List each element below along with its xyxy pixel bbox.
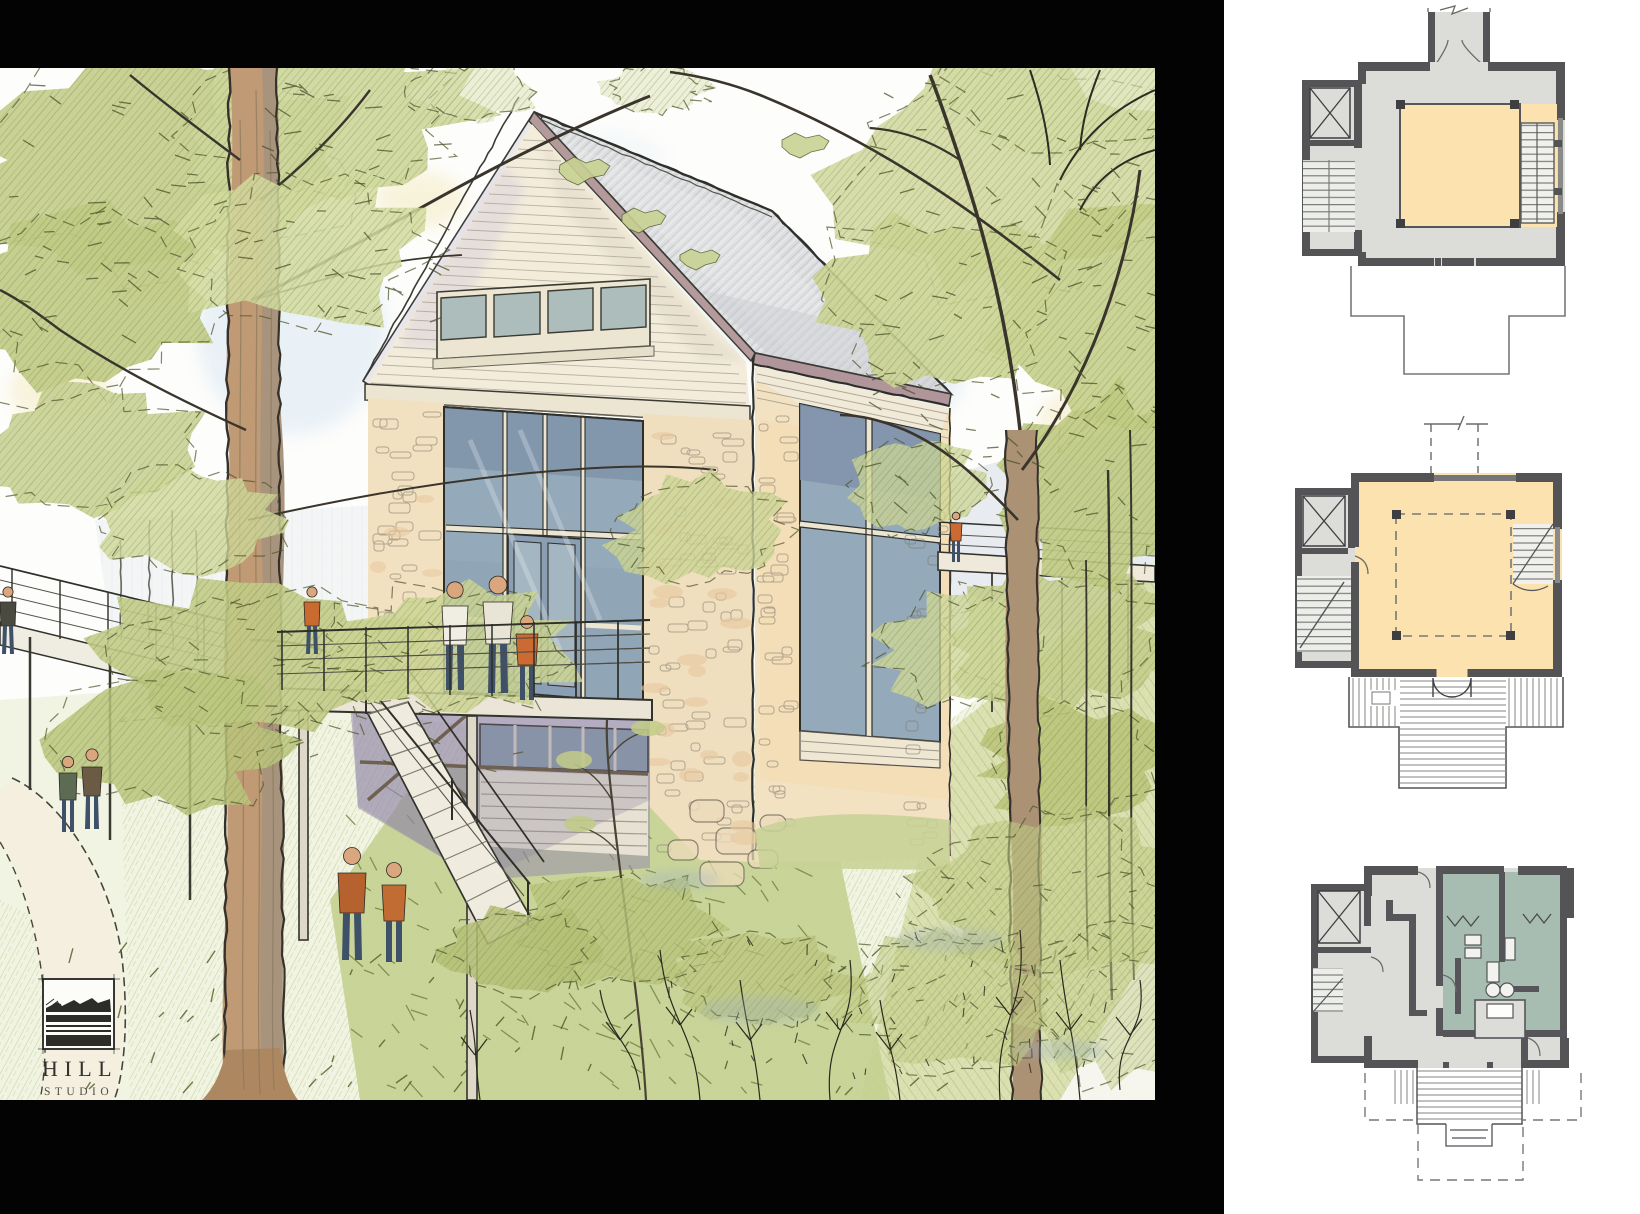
- svg-text:HILL: HILL: [42, 1056, 118, 1081]
- svg-text:STUDIO: STUDIO: [44, 1086, 113, 1098]
